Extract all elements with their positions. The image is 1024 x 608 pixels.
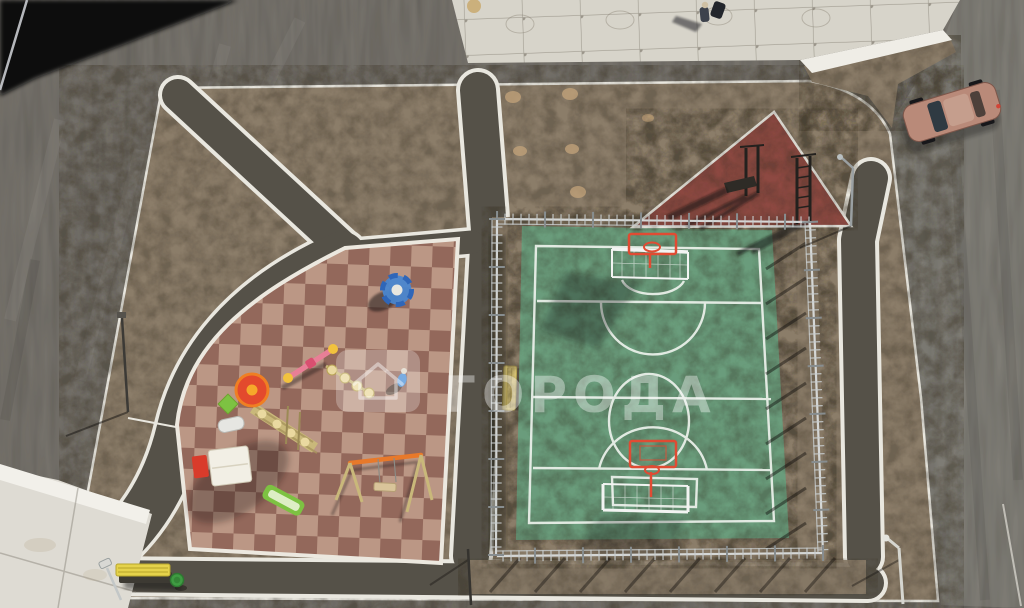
dirt-spot — [642, 114, 654, 122]
slab-smudge — [83, 569, 107, 581]
dirt-spot — [513, 146, 527, 156]
fence-post — [808, 366, 824, 367]
bench-seat — [116, 564, 170, 576]
tower-roof-top — [247, 385, 258, 396]
logo-box — [336, 350, 420, 412]
walkway-step — [287, 429, 296, 438]
fence-post — [810, 414, 826, 415]
footpath-right — [858, 178, 871, 557]
slab-smudge — [24, 538, 56, 552]
carousel — [383, 276, 412, 305]
fence-post — [806, 318, 822, 319]
red-play-box — [192, 455, 210, 479]
bin-opening — [174, 577, 180, 583]
pedestrian-body — [699, 7, 710, 23]
lamp-head — [883, 535, 890, 542]
seesaw-handle — [283, 373, 293, 383]
aerial-photo: ГОРОДА — [0, 0, 1024, 608]
fence-post — [813, 509, 829, 510]
fence-post — [802, 222, 818, 223]
footpath-vertical — [471, 90, 489, 556]
dirt-spot — [505, 91, 521, 103]
dirt-spot — [565, 144, 579, 154]
watermark-text: ГОРОДА — [444, 366, 717, 424]
pedestrian-head — [702, 2, 708, 8]
aerial-photo-stage: ГОРОДА — [0, 0, 1024, 608]
carousel-hub — [392, 285, 403, 296]
dirt-spot — [570, 186, 586, 198]
lamp-head — [837, 154, 843, 160]
walkway-step — [301, 438, 310, 447]
fence-post — [811, 462, 827, 463]
walkway-step — [258, 410, 267, 419]
dirt-spot — [562, 88, 578, 100]
fence-post — [804, 270, 820, 271]
swing-seat — [374, 482, 396, 491]
seesaw-handle — [328, 344, 338, 354]
watermark-logo — [336, 350, 420, 412]
walkway-step — [273, 420, 282, 429]
lamp-head — [117, 312, 126, 318]
beam-step — [327, 365, 337, 375]
